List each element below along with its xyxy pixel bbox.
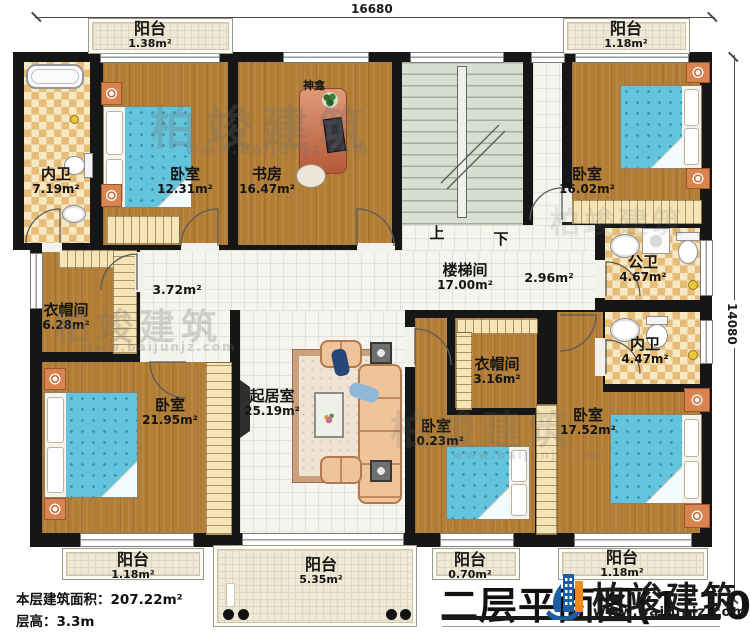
room-label-balcony-bl: 阳台1.18m² <box>73 551 193 581</box>
stairwell-label: 楼梯间17.00m² <box>415 262 515 292</box>
room-label-closet-left: 衣帽间6.28m² <box>31 302 101 332</box>
room-label-balcony-tl: 阳台1.38m² <box>90 20 210 50</box>
room-label-public-bath: 公卫4.67m² <box>603 254 683 284</box>
dimension-top-value: 16680 <box>348 2 396 16</box>
room-label-study: 书房16.47m² <box>217 166 317 196</box>
logo-url-text: www.baijunjz.com <box>593 604 747 620</box>
room-label-bedroom-tr: 卧室16.02m² <box>537 166 637 196</box>
title-underline-thin <box>442 626 720 627</box>
room-label-closet-mid: 衣帽间3.16m² <box>455 356 539 386</box>
logo-mark-icon <box>540 568 590 620</box>
hall-right-area-label: 2.96m² <box>514 270 584 285</box>
room-label-bedroom-br: 卧室17.52m² <box>538 407 638 437</box>
stair-down-label: 下 <box>489 228 513 249</box>
floor-height-note: 层高：3.3m <box>16 610 94 630</box>
floor-area-note: 本层建筑面积：207.22m² <box>16 588 183 608</box>
hall-left-area-label: 3.72m² <box>142 282 212 297</box>
room-label-balcony-bc: 阳台5.35m² <box>261 556 381 586</box>
dimension-right-value: 14080 <box>725 300 739 348</box>
room-label-inner-bath-tl: 内卫7.19m² <box>26 166 86 196</box>
room-label-bedroom-bm: 卧室10.23m² <box>386 418 486 448</box>
room-label-living: 起居室25.19m² <box>222 388 322 418</box>
door-swings-overlay <box>0 0 750 635</box>
shrine-label: 神龛 <box>292 77 336 93</box>
room-label-balcony-tr: 阳台1.18m² <box>566 20 686 50</box>
floor-plan: 阳台1.38m² 内卫7.19m² 卧室12.31m² 书房16.47m² 卧室… <box>0 0 750 635</box>
room-label-inner-bath-right: 内卫4.47m² <box>605 336 685 366</box>
room-label-bedroom-bl: 卧室21.95m² <box>120 397 220 427</box>
dimension-line-top <box>35 17 715 18</box>
stair-up-label: 上 <box>425 222 449 243</box>
